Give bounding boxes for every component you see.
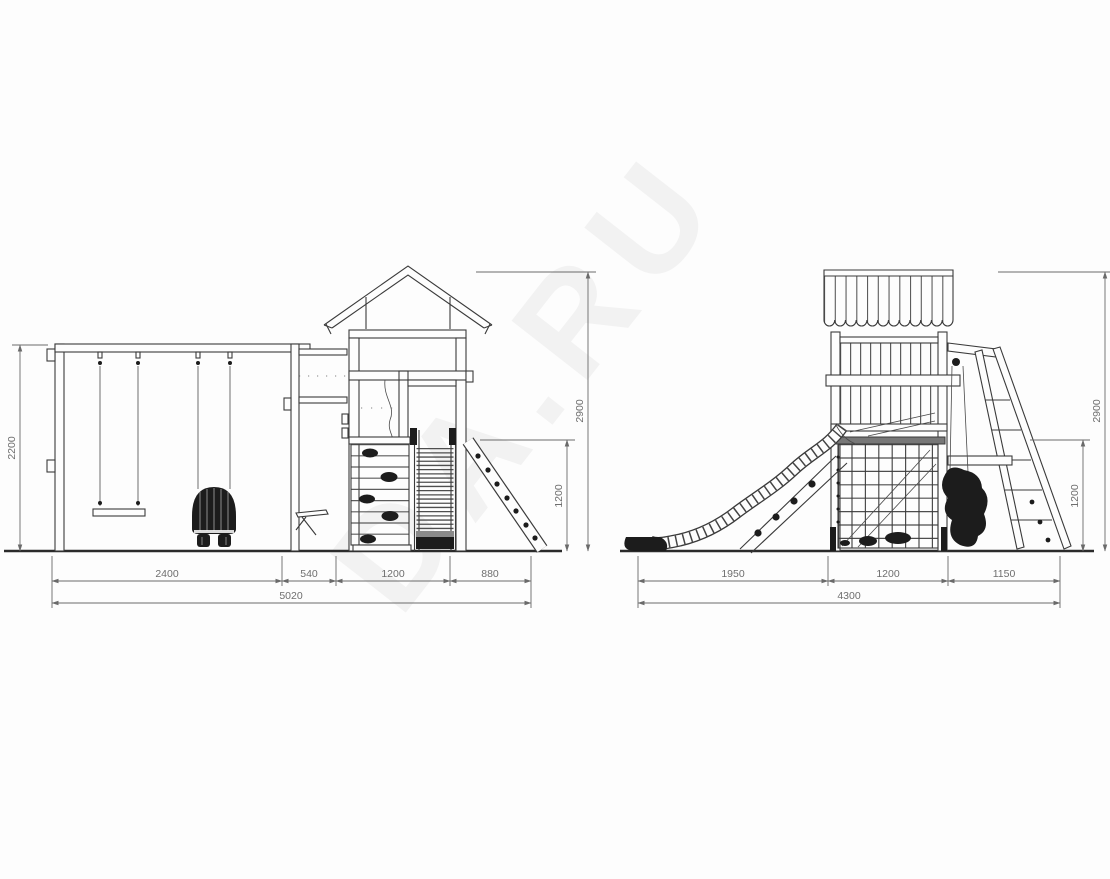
a-frame-outer-leg xyxy=(993,347,1071,549)
swing-a-frame xyxy=(942,343,1071,549)
dim-label-span-total-side: 4300 xyxy=(837,590,861,602)
dim-label-span-total-front: 5020 xyxy=(279,590,303,602)
bucket-seat xyxy=(192,487,236,547)
dim-label-span-swing: 1150 xyxy=(993,568,1016,580)
slide xyxy=(624,425,856,551)
dim-label-height-swing: 1200 xyxy=(1069,484,1081,508)
cargo-net-grid xyxy=(830,437,947,551)
dim-label-span-ladder: 880 xyxy=(481,568,499,580)
swing-hanger-icon xyxy=(196,352,232,365)
flat-swing xyxy=(93,352,145,516)
tower-roof xyxy=(324,266,492,334)
dim-label-height-total-front: 2900 xyxy=(574,399,586,423)
bucket-seat-side xyxy=(942,468,988,547)
dim-label-height-ladder: 1200 xyxy=(553,484,565,508)
slide-end-base xyxy=(624,537,667,551)
dim-label-height-frame: 2200 xyxy=(6,436,18,460)
dim-label-span-tower-front: 1200 xyxy=(381,568,405,580)
dim-label-span-tower-side: 1200 xyxy=(876,568,900,580)
swing-frame xyxy=(47,344,310,551)
dim-label-span-slide: 1950 xyxy=(721,568,745,580)
dim-label-span-porch: 540 xyxy=(300,568,318,580)
play-tower-side xyxy=(826,332,960,551)
dim-label-span-swings: 2400 xyxy=(155,568,179,580)
swing-hanger-icon xyxy=(98,352,140,365)
side-elevation-view: 2900 1200 1950 1200 1150 4300 xyxy=(620,270,1110,608)
drawing-sheet: DA.RU xyxy=(0,0,1110,879)
swing-hanger-icon xyxy=(952,358,960,366)
swing-seat xyxy=(93,509,145,516)
bucket-swing xyxy=(192,352,236,547)
dim-label-height-total-side: 2900 xyxy=(1091,399,1103,423)
canopy-roof xyxy=(824,270,953,326)
elevation-drawing: DA.RU xyxy=(0,0,1110,879)
